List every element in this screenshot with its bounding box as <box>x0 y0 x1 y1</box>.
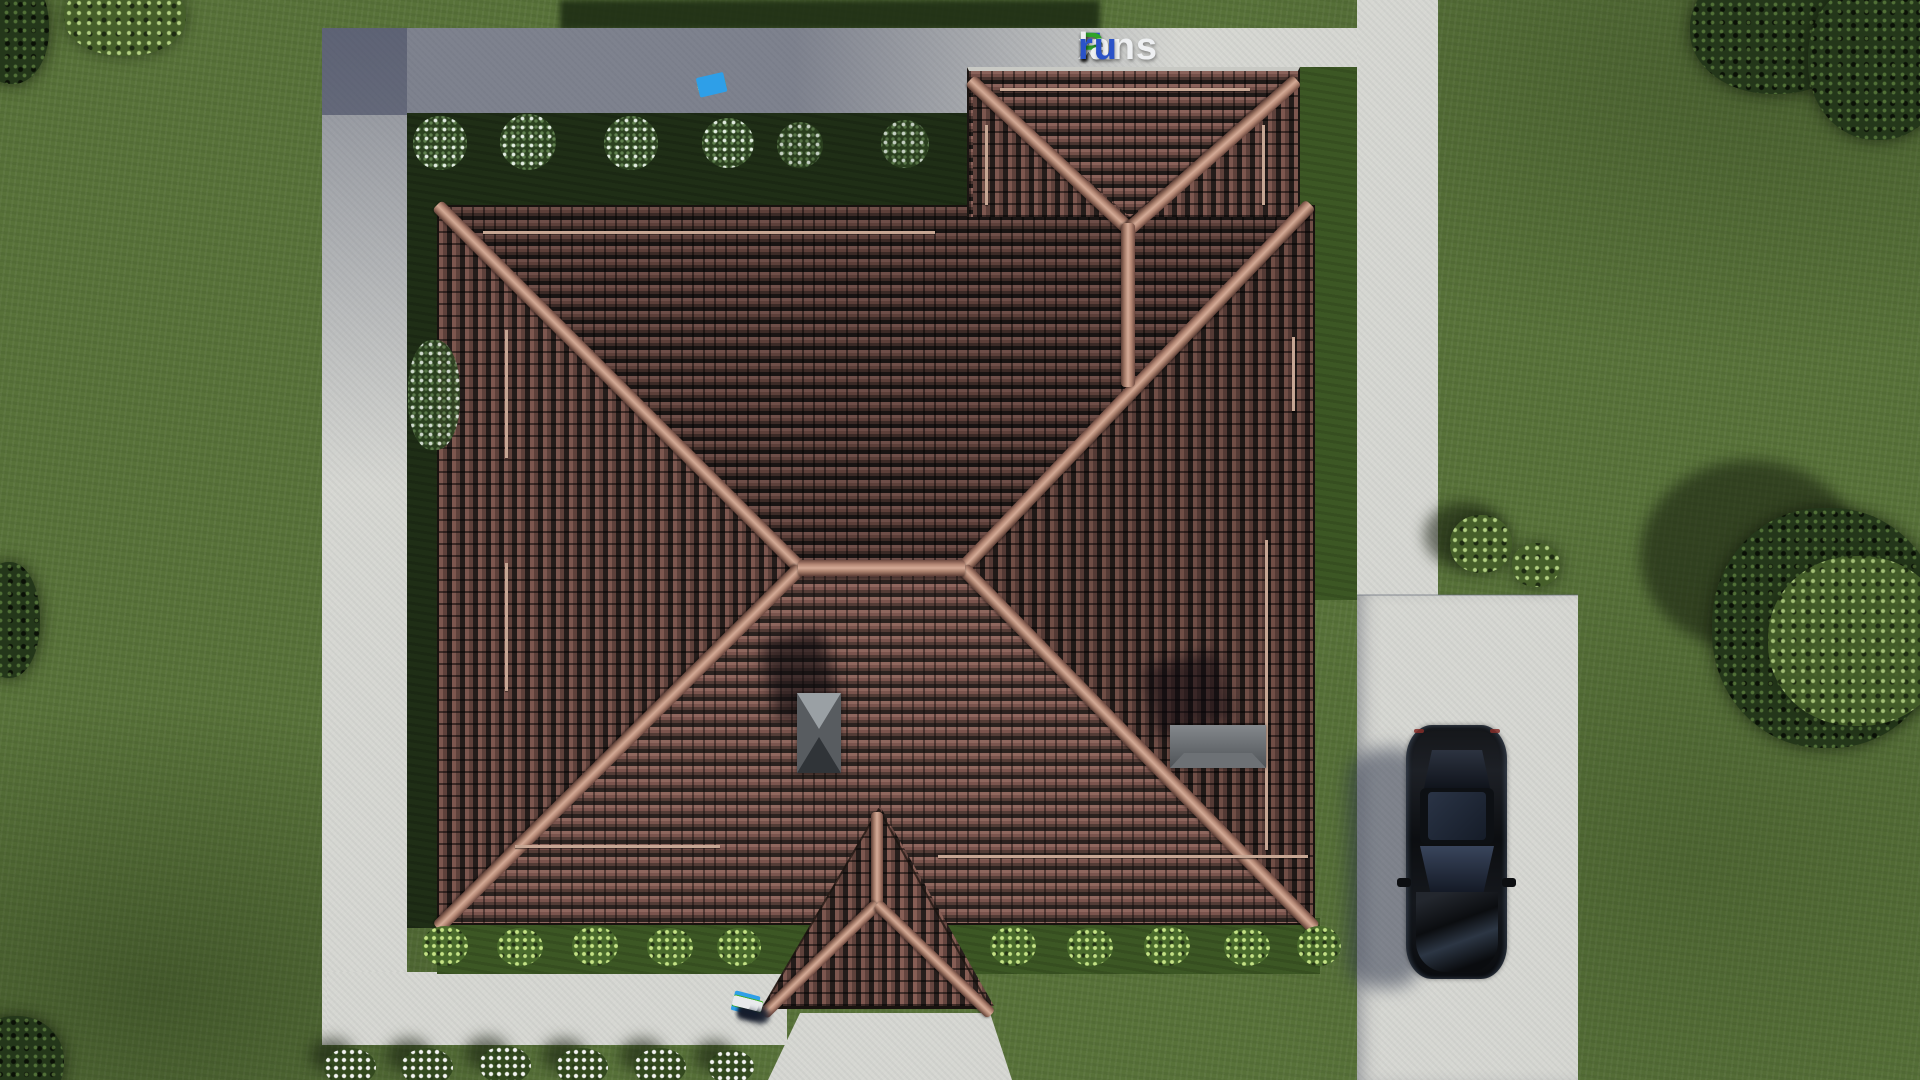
car-windshield <box>1420 846 1494 892</box>
snow-bar <box>505 563 508 691</box>
flowering-shrub <box>500 114 556 170</box>
snow-bar <box>505 330 508 458</box>
main-ridge-beam <box>798 560 965 576</box>
flowering-shrub <box>881 120 929 168</box>
flowering-shrub <box>777 122 823 168</box>
car-hood <box>1416 892 1498 972</box>
hedge-bush <box>1224 928 1270 966</box>
porch-eave-edge <box>765 1006 991 1009</box>
hedge-bush <box>1067 928 1113 966</box>
car-mirror-right <box>1502 878 1516 887</box>
flower-bush <box>401 1048 453 1080</box>
left-path <box>322 28 407 1045</box>
aerial-render: FixPlans.ru <box>0 0 1920 1080</box>
tree-cluster <box>1768 556 1920 726</box>
car-roof-glass <box>1428 792 1486 840</box>
right-path <box>1357 0 1438 600</box>
bush <box>1512 543 1560 587</box>
flower-bush <box>634 1048 686 1080</box>
roof-hatch-face <box>1170 725 1266 768</box>
snow-bar <box>1000 88 1250 91</box>
drain-pipe <box>1265 540 1268 850</box>
snow-bar <box>1262 125 1265 205</box>
hedge-bush <box>572 926 618 966</box>
driveway-seam <box>1357 594 1578 596</box>
hedge-bush <box>990 926 1036 966</box>
car <box>1406 725 1507 979</box>
flower-bush <box>479 1046 531 1080</box>
hedge-bush <box>497 928 543 966</box>
roof-hatch <box>1170 725 1266 768</box>
flower-bush <box>324 1048 376 1080</box>
chimney <box>797 693 841 773</box>
flowering-shrub <box>604 116 658 170</box>
flowering-shrub <box>408 340 460 450</box>
snow-bar <box>1292 337 1295 411</box>
hedge-bush <box>647 928 693 966</box>
snow-bar <box>985 125 988 205</box>
hedge-bush <box>1144 926 1190 966</box>
car-taillight-right <box>1490 729 1500 733</box>
flower-bush <box>556 1048 608 1080</box>
bush <box>1450 515 1512 573</box>
hedge-bush <box>1297 926 1341 966</box>
hedge-bush <box>422 926 468 966</box>
snow-bar <box>938 855 1308 858</box>
car-taillight-left <box>1414 729 1424 733</box>
flower-bush <box>708 1050 754 1080</box>
porch-walkway <box>760 1008 1015 1080</box>
shaded-lawn-left <box>407 113 439 928</box>
bottom-path <box>327 972 787 1045</box>
snow-bar <box>515 845 720 848</box>
flowering-shrub <box>413 116 467 170</box>
watermark-letter: ru <box>1078 26 1118 69</box>
car-mirror-left <box>1397 878 1411 887</box>
flowering-shrub <box>702 118 754 168</box>
car-rear-window <box>1424 750 1490 788</box>
snow-bar <box>483 231 935 234</box>
tree-line-shadow <box>560 0 1100 30</box>
hedge-bush <box>717 928 761 966</box>
garage-ridge-beam <box>1121 223 1135 387</box>
porch-ridge-beam <box>871 812 883 908</box>
